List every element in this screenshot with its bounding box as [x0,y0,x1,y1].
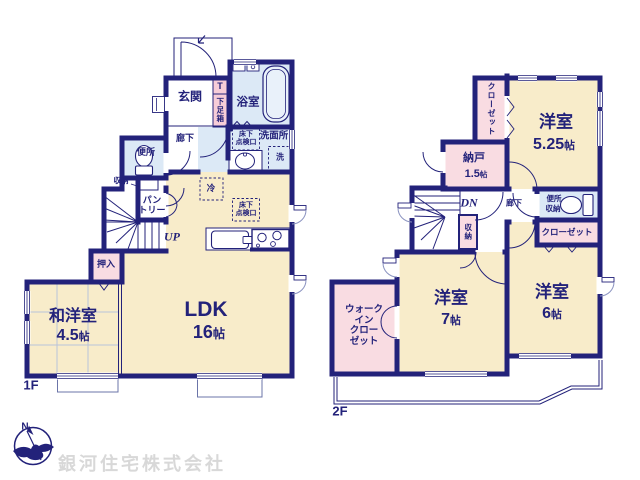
label-underfloor-hatch: 床下点検口 [236,131,257,147]
floorplan-page: 玄関 T 下足箱 浴室 洗面所 洗 床下点検口 床下点検口 廊下 便所 収納 パ… [0,0,640,480]
label-washer: 洗 [276,154,284,163]
label-shoe-box: 下足箱 [216,97,224,123]
room-label-toilet-1f: 便所 [137,147,155,157]
label-stairs-up: UP [164,230,180,243]
kitchen-counter [206,228,292,250]
terrace [58,379,119,393]
size-label-bedroom6: 6帖 [542,305,562,323]
size-label-ldk: 16帖 [193,322,225,342]
entrance-porch [174,38,232,77]
label-hallway-2f: 廊下 [506,200,522,209]
size-label-bedroom525: 5.25帖 [533,136,575,154]
compass-north-label: N [21,421,28,432]
size-label-bedroom7: 7帖 [441,311,461,329]
room-label-bedroom6: 洋室 [535,282,569,301]
room-label-storeroom: 納戸 [463,152,485,164]
toilet-icon [561,195,594,216]
label-shoe-t: T [217,81,223,91]
size-label-storeroom: 1.5帖 [465,168,488,180]
room-label-entrance: 玄関 [178,90,202,103]
room-label-ldk: LDK [184,298,227,322]
label-storage-1f: 収納 [114,177,129,185]
room-label-toilet-2f: 便所 [547,195,562,203]
room-label-bedroom525: 洋室 [539,112,573,131]
compass-icon [13,426,54,465]
company-watermark: 銀河住宅株式会社 [58,450,226,476]
label-toilet-storage: 収納 [546,205,561,213]
label-fridge: 冷 [207,184,216,194]
floor-label-1f: 1F [23,379,38,394]
floorplan-graphics [0,0,640,480]
room-label-washroom: 洗面所 [260,132,289,143]
terrace [198,379,263,398]
room-label-pantry: パントリー [138,195,165,215]
label-underfloor-hatch: 床下点検口 [236,202,257,218]
room-label-walkin-closet: ウォークイン クローゼット [345,305,383,348]
label-hallway-1f: 廊下 [176,133,194,143]
room-label-japanese-room: 和洋室 [49,308,97,326]
floor-label-2f: 2F [332,405,347,420]
label-stair-storage: 収納 [464,224,472,241]
size-label-japanese-room: 4.5帖 [56,327,89,345]
wash-basin-icon [229,151,262,172]
label-stairs-dn: DN [460,196,477,209]
room-label-bathroom: 浴室 [237,97,260,110]
room-label-closet-north: クローゼット [487,82,495,136]
room-label-oshiire: 押入 [97,259,115,269]
room-label-bedroom7: 洋室 [434,288,468,307]
room-label-closet-east: クローゼット [541,228,592,238]
stove-icon [252,230,289,250]
